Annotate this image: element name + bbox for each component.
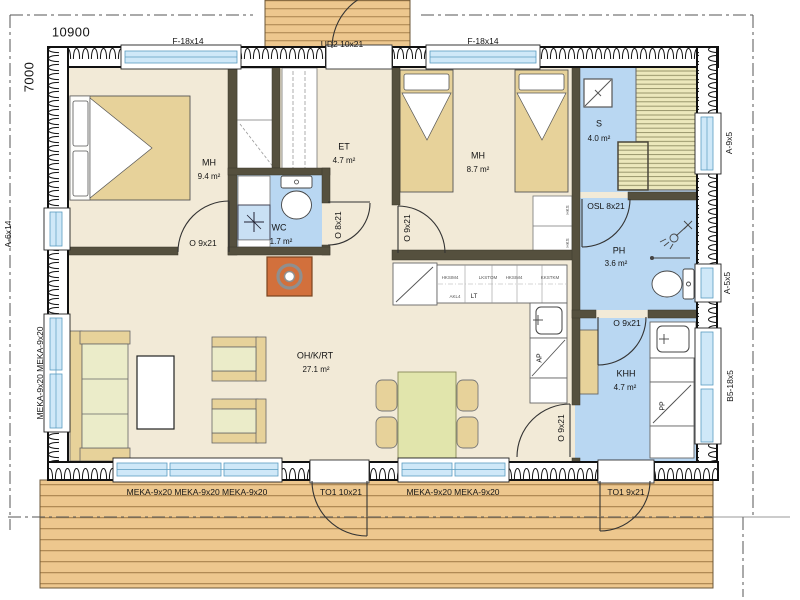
floor-plan: 10900 7000 F-18x14 UD2 10x21 F-18x14 A-9… (0, 0, 800, 600)
dimension-height: 7000 (23, 62, 36, 93)
floor-plan-drawing (0, 0, 800, 600)
door-label-front: UD2 10x21 (321, 40, 364, 49)
room-name-ph: PH (613, 247, 626, 256)
cabinet-code: LKSTOM (479, 276, 497, 281)
window-meka-bottom-double (398, 458, 509, 482)
washer-label: PP (660, 401, 667, 410)
room-area-mh2: 8.7 m² (467, 166, 490, 174)
window-meka-bottom-triple (113, 458, 282, 482)
door-label-terrace-main: TO1 10x21 (320, 488, 362, 497)
room-area-ph: 3.6 m² (605, 260, 628, 268)
closet-code: HKS (566, 205, 571, 214)
room-area-sauna: 4.0 m² (588, 135, 611, 143)
door-label-terrace-khh: TO1 9x21 (607, 488, 644, 497)
cabinet-code: HKSIM4 (506, 276, 523, 281)
window-label-meka-bottom-double: MEKA-9x20 MEKA-9x20 (406, 488, 499, 497)
window-a9x5 (695, 113, 721, 174)
door-label-ph-khh: O 9x21 (613, 319, 640, 328)
window-label-a5x5: A-5x5 (723, 272, 732, 294)
door-label-bedroom1: O 9x21 (189, 239, 216, 248)
armchair (212, 399, 266, 443)
door-label-bedroom2: O 9x21 (403, 214, 412, 241)
door-label-wc: O 8x21 (334, 211, 343, 238)
single-bed (515, 70, 568, 192)
coffee-table (137, 356, 174, 429)
sauna-stove-icon (584, 79, 612, 107)
window-a6x14 (44, 208, 70, 250)
window-label-meka-left: MEKA-9x20 MEKA-9x20 (36, 326, 45, 419)
window-f2 (426, 45, 540, 69)
window-label-a9x5: A-9x5 (725, 132, 734, 154)
window-label-f2: F-18x14 (467, 37, 498, 46)
dimension-width: 10900 (52, 26, 90, 39)
armchair (212, 337, 266, 381)
window-label-b5-18x5: B5-18x5 (726, 370, 735, 402)
room-area-ohkrt: 27.1 m² (302, 366, 329, 374)
room-area-mh1: 9.4 m² (198, 173, 221, 181)
door-label-oh-khh: O 9x21 (557, 414, 566, 441)
room-name-sauna: S (596, 120, 602, 129)
room-name-mh2: MH (471, 152, 485, 161)
room-area-et: 4.7 m² (333, 157, 356, 165)
window-meka-left (44, 314, 70, 432)
window-a5x5 (695, 264, 721, 302)
window-label-meka-bottom-triple: MEKA-9x20 MEKA-9x20 MEKA-9x20 (127, 488, 268, 497)
room-name-khh: KHH (616, 370, 635, 379)
single-bed (400, 70, 453, 192)
dishwasher-label: AP (537, 353, 544, 362)
room-name-mh1: MH (202, 159, 216, 168)
double-bed (70, 96, 190, 200)
room-name-et: ET (338, 143, 350, 152)
cabinet-code: AKL4 (449, 295, 460, 300)
door-label-sauna: OSL 8x21 (587, 202, 625, 211)
cabinet-code: HKSIM4 (442, 276, 459, 281)
stove-label: LT (471, 294, 478, 300)
window-f1 (121, 45, 241, 69)
room-area-khh: 4.7 m² (614, 384, 637, 392)
window-b5-18x5 (695, 328, 721, 444)
room-name-wc: WC (272, 224, 287, 233)
cabinet-code: KKSTKM (541, 276, 560, 281)
closet-code: HKS (566, 238, 571, 247)
fireplace (267, 257, 312, 296)
window-label-a6x14: A-6x14 (4, 221, 13, 248)
room-area-wc: 1.7 m² (270, 238, 293, 246)
room-name-ohkrt: OH/K/RT (297, 352, 333, 361)
window-label-f1: F-18x14 (172, 37, 203, 46)
sofa (70, 331, 130, 461)
